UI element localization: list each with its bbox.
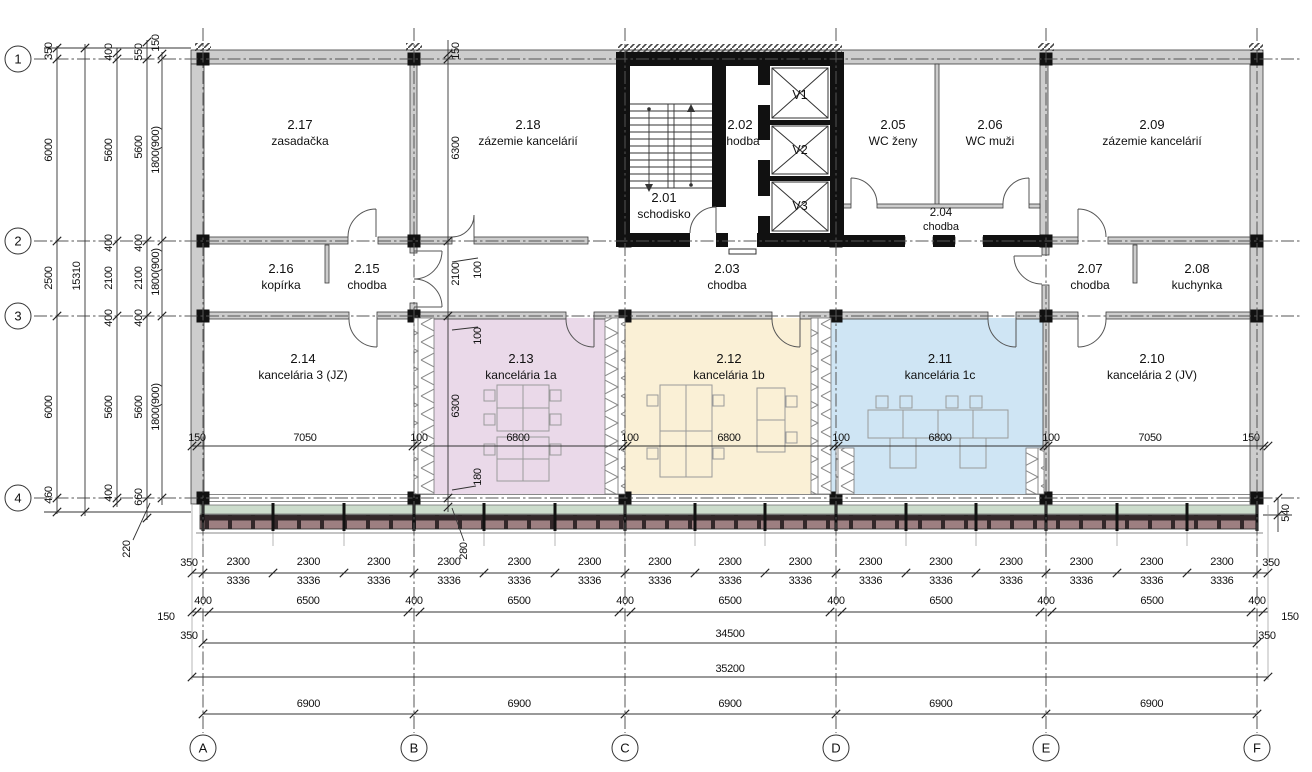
dim: 150 (188, 432, 205, 444)
dim: 6500 (296, 595, 319, 607)
dim: 1800(900) (150, 383, 162, 430)
dim: 220 (121, 540, 133, 557)
elevator-label-v3: V3 (792, 199, 807, 213)
grid-bubble-4: 4 (5, 485, 32, 512)
dim: 350 (180, 630, 197, 642)
room-label-2-02: 2.02chodba (720, 117, 759, 149)
grid-bubble-d: D (823, 735, 850, 762)
room-label-2-03: 2.03chodba (707, 261, 746, 293)
grid-bubble-b: B (401, 735, 428, 762)
dim: 400 (133, 309, 145, 326)
dim: 6300 (450, 136, 462, 159)
dim: 400 (103, 484, 115, 501)
dim: 1800(900) (150, 248, 162, 295)
elevator-label-v2: V2 (792, 143, 807, 157)
grid-bubble-2: 2 (5, 228, 32, 255)
floor-plan-page: 1 2 3 4 A B C D E F 2.17zasadačka 2.18zá… (0, 0, 1312, 772)
dim: 6500 (507, 595, 530, 607)
dim: 400 (103, 234, 115, 251)
dim: 100 (472, 261, 484, 278)
dim: 6800 (928, 432, 951, 444)
grid-bubble-1: 1 (5, 46, 32, 73)
room-label-2-12: 2.12kancelária 1b (693, 351, 764, 383)
room-label-2-10: 2.10kancelária 2 (JV) (1107, 351, 1197, 383)
grid-bubble-a: A (190, 735, 217, 762)
dim-total-34500: 34500 (715, 628, 744, 640)
dim: 150 (157, 611, 174, 623)
grid-bubble-f: F (1244, 735, 1271, 762)
room-label-2-18: 2.18zázemie kancelárií (478, 117, 577, 149)
grid-bubble-3: 3 (5, 303, 32, 330)
dim: 7050 (1138, 432, 1161, 444)
room-label-2-04: 2.04chodba (923, 206, 959, 233)
dim: 350 (1258, 630, 1275, 642)
dim: 400 (1037, 595, 1054, 607)
floor-plan-drawing (0, 0, 1312, 772)
dim: 6500 (718, 595, 741, 607)
dim: 5600 (103, 395, 115, 418)
dim: 400 (616, 595, 633, 607)
dim-right-540: 540 (1280, 504, 1292, 521)
dim: 6800 (717, 432, 740, 444)
dim: 6000 (43, 138, 55, 161)
dim-row-3336: 3336333633363336333633363336333633363336… (203, 575, 1257, 589)
dim: 660 (133, 488, 145, 505)
room-label-2-06: 2.06WC muži (966, 117, 1015, 149)
dim: 100 (410, 432, 427, 444)
dim: 5600 (133, 395, 145, 418)
room-label-2-13: 2.13kancelária 1a (485, 351, 556, 383)
room-label-2-15: 2.15chodba (347, 261, 386, 293)
dim: 350 (43, 42, 55, 59)
stair-arrows (645, 104, 695, 192)
elevator-label-v1: V1 (792, 88, 807, 102)
dim-row-6900: 69006900690069006900 (203, 698, 1257, 712)
dim: 400 (405, 595, 422, 607)
dim-row-2300: 2300230023002300230023002300230023002300… (203, 556, 1257, 570)
dim: 2500 (43, 266, 55, 289)
dim: 2100 (450, 262, 462, 285)
dim: 100 (1042, 432, 1059, 444)
dim: 400 (133, 234, 145, 251)
dim: 460 (43, 486, 55, 503)
dim: 100 (832, 432, 849, 444)
dim: 400 (103, 43, 115, 60)
room-label-2-09: 2.09zázemie kancelárií (1102, 117, 1201, 149)
dim: 6000 (43, 395, 55, 418)
dim: 150 (450, 42, 462, 59)
dim: 1800(900) (150, 126, 162, 173)
dim-total-35200: 35200 (715, 663, 744, 675)
dim: 5600 (133, 135, 145, 158)
dim: 7050 (293, 432, 316, 444)
dim: 150 (150, 34, 162, 51)
dim: 350 (180, 557, 197, 569)
room-label-2-17: 2.17zasadačka (271, 117, 328, 149)
room-label-2-07: 2.07chodba (1070, 261, 1109, 293)
dim: 400 (103, 309, 115, 326)
dim: 400 (827, 595, 844, 607)
dim: 400 (1248, 595, 1265, 607)
room-label-2-14: 2.14kancelária 3 (JZ) (258, 351, 347, 383)
dim: 350 (1262, 557, 1279, 569)
dim: 2100 (103, 266, 115, 289)
room-fill-office-1c (831, 318, 1043, 494)
room-label-2-05: 2.05WC ženy (869, 117, 918, 149)
dim: 150 (1281, 611, 1298, 623)
staircase (630, 104, 712, 188)
dim: 6500 (929, 595, 952, 607)
dim: 550 (133, 43, 145, 60)
grid-bubble-e: E (1033, 735, 1060, 762)
room-label-2-08: 2.08kuchynka (1172, 261, 1223, 293)
dim: 15310 (71, 261, 83, 290)
dim: 180 (472, 468, 484, 485)
dim: 2100 (133, 266, 145, 289)
dim: 6300 (450, 394, 462, 417)
dim: 400 (194, 595, 211, 607)
room-label-2-01: 2.01schodisko (637, 190, 690, 222)
room-label-2-16: 2.16kopírka (261, 261, 300, 293)
dim: 150 (1242, 432, 1259, 444)
south-facade (196, 495, 1263, 547)
dim: 100 (472, 327, 484, 344)
dim: 100 (621, 432, 638, 444)
elevator-shafts (729, 68, 828, 254)
dim: 5600 (103, 138, 115, 161)
dim: 6800 (506, 432, 529, 444)
room-label-2-11: 2.11kancelária 1c (905, 351, 976, 383)
dim: 6500 (1140, 595, 1163, 607)
grid-bubble-c: C (612, 735, 639, 762)
